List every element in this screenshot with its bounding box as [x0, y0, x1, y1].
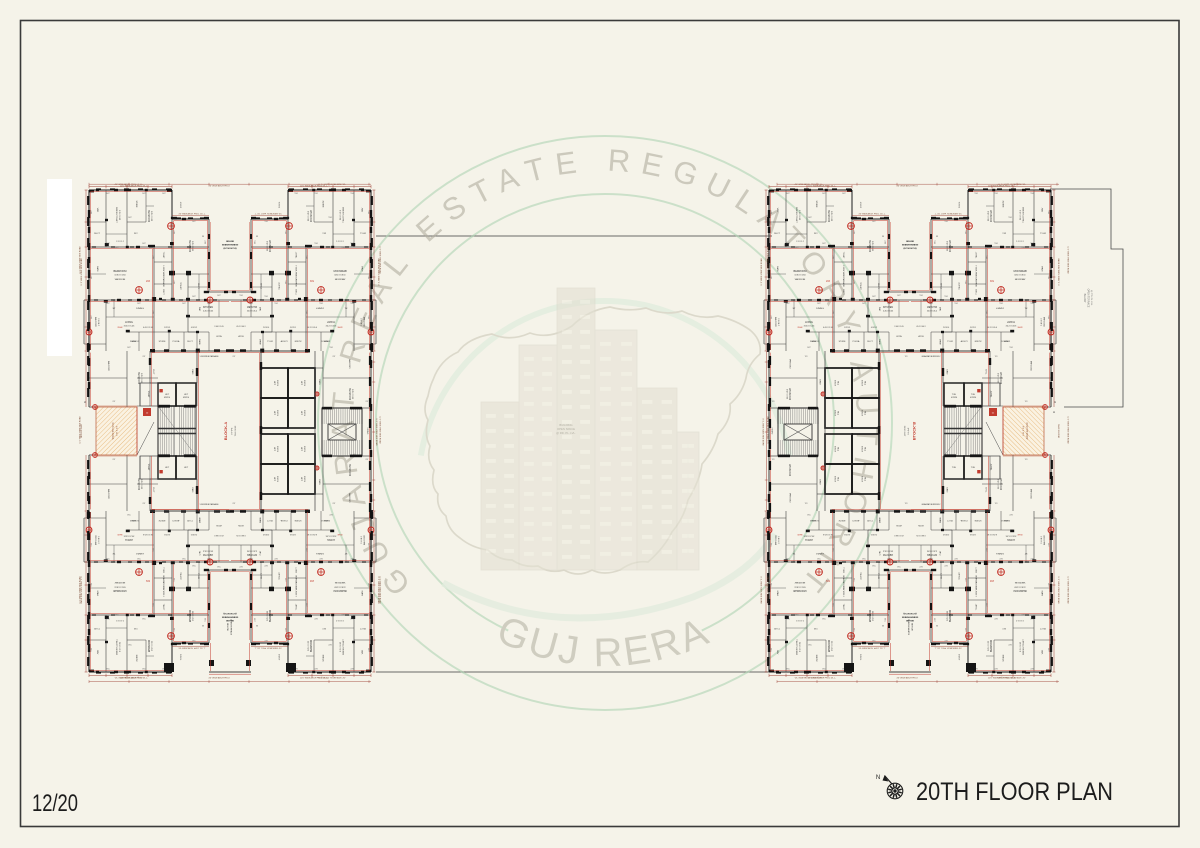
svg-text:0.9X1.2: 0.9X1.2: [263, 327, 269, 329]
svg-text:1.5 X 4.2: 1.5 X 4.2: [97, 318, 99, 326]
svg-text:VER: VER: [1042, 649, 1044, 654]
svg-text:2.1 X 1.2: 2.1 X 1.2: [116, 619, 124, 621]
svg-text:STORE: STORE: [135, 201, 137, 209]
svg-text:11'0" WIDE VIEW SIDE ROAD: 11'0" WIDE VIEW SIDE ROAD: [767, 416, 770, 444]
svg-text:DRESS TOILET: DRESS TOILET: [343, 207, 345, 223]
svg-text:10'6": 10'6": [833, 255, 835, 259]
svg-text:PASS: PASS: [946, 370, 949, 375]
svg-text:4.05 X 1.50: 4.05 X 1.50: [307, 533, 317, 535]
svg-text:BELOW: BELOW: [1083, 294, 1086, 303]
svg-text:10'6": 10'6": [328, 643, 332, 645]
svg-text:W: W: [256, 236, 258, 238]
svg-text:10'6": 10'6": [142, 667, 146, 669]
svg-text:10'6": 10'6": [128, 217, 132, 219]
svg-text:10'6": 10'6": [162, 193, 166, 195]
svg-text:4'6" WIDE ARCH. PROJ. @ L.L.: 4'6" WIDE ARCH. PROJ. @ L.L.: [858, 647, 886, 650]
svg-text:DUCT: DUCT: [94, 233, 101, 235]
svg-text:BALCONY: BALCONY: [1043, 534, 1046, 545]
svg-text:2.1 X 1.2: 2.1 X 1.2: [116, 241, 124, 243]
svg-text:10'6": 10'6": [854, 230, 856, 234]
svg-text:10'6": 10'6": [264, 639, 268, 641]
svg-text:10'6": 10'6": [239, 295, 243, 297]
svg-text:1.5M WIDE PASSAGE: 1.5M WIDE PASSAGE: [921, 355, 941, 358]
svg-text:POOJA: POOJA: [960, 340, 967, 343]
svg-text:10'6": 10'6": [933, 240, 935, 244]
svg-text:KOTA: KOTA: [238, 335, 244, 338]
svg-text:4.5X6.0: 4.5X6.0: [179, 654, 181, 660]
svg-text:2BHK: 2BHK: [337, 533, 343, 535]
svg-text:10'6": 10'6": [807, 513, 811, 515]
svg-text:10'6": 10'6": [994, 667, 998, 669]
svg-text:10'6": 10'6": [153, 255, 155, 259]
svg-text:2BHK: 2BHK: [797, 327, 803, 329]
svg-text:WARDROBE: WARDROBE: [115, 581, 126, 584]
svg-text:10'6": 10'6": [854, 280, 856, 284]
svg-text:2.45 X 3.05: 2.45 X 3.05: [926, 550, 937, 552]
svg-text:2BHK: 2BHK: [1017, 533, 1023, 535]
svg-text:VER: VER: [776, 649, 778, 654]
svg-text:10'6": 10'6": [944, 639, 948, 641]
svg-text:3.05 X 4.20: 3.05 X 4.20: [191, 241, 193, 252]
svg-text:10'6": 10'6": [274, 557, 278, 559]
svg-text:3.05 X 3.20: 3.05 X 3.20: [140, 373, 142, 384]
svg-text:11'0" WIDE VIEW SIDE ROAD: 11'0" WIDE VIEW SIDE ROAD: [79, 576, 82, 604]
svg-text:LIFT: LIFT: [970, 394, 975, 396]
svg-text:8'4": 8'4": [143, 356, 146, 358]
svg-text:W: W: [936, 236, 938, 238]
svg-text:10'6": 10'6": [284, 628, 286, 632]
svg-text:VER: VER: [1042, 208, 1044, 213]
svg-text:BALCONY: BALCONY: [363, 534, 366, 545]
svg-text:BEDROOM: BEDROOM: [348, 388, 350, 400]
svg-text:10'6": 10'6": [314, 193, 318, 195]
svg-text:10'6": 10'6": [1047, 543, 1049, 547]
svg-text:PASS: PASS: [819, 479, 822, 485]
svg-text:11'6" WIDE ARCH PROJ @L.L.: 11'6" WIDE ARCH PROJ @L.L.: [988, 184, 1016, 187]
svg-text:10'6": 10'6": [174, 628, 176, 632]
svg-text:2.44 X 1.05: 2.44 X 1.05: [214, 326, 223, 328]
svg-text:BEDROOM: BEDROOM: [348, 464, 350, 476]
svg-text:BEDROOM: BEDROOM: [114, 589, 127, 592]
svg-text:STORE: STORE: [974, 341, 982, 343]
svg-text:W: W: [882, 236, 884, 238]
svg-text:8'4": 8'4": [1024, 401, 1027, 403]
svg-text:1.2X1.5: 1.2X1.5: [164, 327, 170, 329]
svg-text:1.20 M WIDE PASSAGE: 1.20 M WIDE PASSAGE: [842, 574, 845, 597]
svg-text:BEDROOM: BEDROOM: [950, 240, 952, 252]
svg-text:DUCT: DUCT: [359, 233, 366, 235]
svg-text:TOILET: TOILET: [179, 572, 181, 580]
svg-text:11'0" WIDE VIEW SIDE ROAD: 11'0" WIDE VIEW SIDE ROAD: [1057, 258, 1060, 286]
svg-text:2BHK: 2BHK: [337, 327, 343, 329]
svg-text:3.05 X 3.20: 3.05 X 3.20: [998, 479, 1000, 490]
svg-text:POOJA: POOJA: [280, 340, 287, 343]
svg-text:10'6": 10'6": [205, 618, 207, 622]
svg-text:10'6": 10'6": [106, 617, 110, 619]
svg-text:LIVING: LIVING: [1007, 321, 1015, 324]
svg-text:4.05 X 1.50: 4.05 X 1.50: [823, 327, 833, 329]
svg-text:8'4X5'4: 8'4X5'4: [303, 410, 305, 416]
svg-text:TOILET: TOILET: [976, 252, 978, 259]
svg-text:HTYPE: HTYPE: [907, 427, 909, 434]
svg-text:1.20 M WIDE PASSAGE: 1.20 M WIDE PASSAGE: [162, 574, 165, 597]
svg-text:@ 7TH FL. LVL.: @ 7TH FL. LVL.: [1090, 290, 1092, 306]
svg-text:DUCT: DUCT: [266, 519, 272, 521]
svg-text:4'6" WIDE ARCH. PROJ. @ L.L.: 4'6" WIDE ARCH. PROJ. @ L.L.: [934, 212, 962, 215]
svg-text:2.15 X 2.45: 2.15 X 2.45: [1020, 641, 1022, 652]
svg-text:BEDROOM: BEDROOM: [868, 240, 870, 252]
svg-text:3.65 X 5.05: 3.65 X 5.05: [325, 535, 336, 537]
svg-text:0.9X1.2: 0.9X1.2: [263, 533, 269, 535]
svg-text:1.2X1.5: 1.2X1.5: [844, 327, 850, 329]
svg-text:10'6": 10'6": [153, 548, 155, 552]
svg-text:10'6": 10'6": [985, 548, 987, 552]
svg-text:10'6": 10'6": [294, 193, 298, 195]
svg-text:4.2 X 11.6: 4.2 X 11.6: [1023, 426, 1025, 437]
svg-text:BEDROOM: BEDROOM: [147, 210, 149, 222]
svg-text:OPEN TERRACE: OPEN TERRACE: [230, 619, 233, 636]
svg-text:KOTA: KOTA: [896, 524, 902, 527]
svg-text:10'6": 10'6": [305, 255, 307, 259]
svg-text:DINING: DINING: [136, 552, 144, 554]
svg-text:3.05 X 4.20: 3.05 X 4.20: [947, 610, 949, 621]
svg-text:2.44 X 1.05: 2.44 X 1.05: [214, 534, 223, 536]
svg-text:1.20 M WIDE PASSAGE: 1.20 M WIDE PASSAGE: [842, 265, 845, 288]
svg-text:10'6": 10'6": [807, 347, 811, 349]
svg-text:DUCT: DUCT: [774, 233, 781, 235]
svg-text:8'4": 8'4": [904, 503, 907, 505]
svg-text:BEDROOM: BEDROOM: [991, 210, 993, 222]
svg-text:BEDROOM: BEDROOM: [827, 210, 829, 222]
svg-text:2BHK: 2BHK: [797, 533, 803, 535]
svg-text:PASS: PASS: [191, 488, 194, 493]
svg-text:10'6": 10'6": [91, 275, 93, 279]
svg-text:3.05 X 3.20: 3.05 X 3.20: [140, 479, 142, 490]
svg-text:BALCONY: BALCONY: [94, 534, 97, 545]
svg-text:W.T.: W.T.: [1002, 233, 1006, 235]
svg-text:10'6": 10'6": [994, 617, 998, 619]
svg-text:10'6": 10'6": [1047, 648, 1049, 652]
svg-text:2.1 X 1.2: 2.1 X 1.2: [1016, 241, 1024, 243]
svg-text:8'4": 8'4": [366, 401, 369, 403]
svg-text:1.5 X 4.2: 1.5 X 4.2: [1041, 318, 1043, 326]
svg-text:N: N: [876, 775, 880, 781]
svg-text:3.05 X 4.20: 3.05 X 4.20: [871, 610, 873, 621]
svg-text:2.15 X 2.45: 2.15 X 2.45: [118, 641, 120, 652]
svg-text:1.5 X 4.2: 1.5 X 4.2: [777, 536, 779, 544]
svg-text:2.0X1.5: 2.0X1.5: [321, 519, 327, 521]
svg-text:WARDROBE: WARDROBE: [334, 278, 345, 281]
svg-text:DRESS TOILET: DRESS TOILET: [115, 207, 117, 223]
svg-text:10'6": 10'6": [862, 303, 866, 305]
svg-text:DUCT: DUCT: [197, 572, 199, 578]
svg-text:10'6": 10'6": [985, 310, 987, 314]
svg-text:BEDROOM: BEDROOM: [270, 610, 272, 622]
svg-text:BEDROOM: BEDROOM: [991, 640, 993, 652]
svg-text:11'0" WIDE VIEW SIDE ROAD: 11'0" WIDE VIEW SIDE ROAD: [379, 416, 382, 444]
svg-text:BATH: BATH: [1041, 266, 1044, 272]
svg-text:STORE: STORE: [815, 654, 817, 662]
svg-text:10'6": 10'6": [833, 548, 835, 552]
svg-text:LIFT: LIFT: [184, 467, 189, 469]
svg-text:TOILET: TOILET: [296, 603, 298, 610]
svg-text:BELOW: BELOW: [226, 241, 234, 243]
svg-text:10'6": 10'6": [842, 193, 846, 195]
svg-text:10'6": 10'6": [174, 230, 176, 234]
svg-text:DUCT: DUCT: [1039, 233, 1046, 235]
svg-text:4.2 X 11.6: 4.2 X 11.6: [115, 426, 117, 437]
svg-text:OPEN TERRACE: OPEN TERRACE: [908, 619, 911, 636]
svg-text:3.05 X 4.20: 3.05 X 4.20: [871, 241, 873, 252]
svg-text:203: 203: [309, 579, 314, 582]
svg-text:DINING: DINING: [316, 308, 324, 310]
svg-text:10'6": 10'6": [106, 193, 110, 195]
svg-text:8'4": 8'4": [113, 459, 116, 461]
svg-text:10'6": 10'6": [944, 564, 948, 566]
svg-text:3.05 X 4.20: 3.05 X 4.20: [267, 610, 269, 621]
svg-text:PASS: PASS: [318, 379, 321, 385]
svg-text:2.0X1.5: 2.0X1.5: [1001, 341, 1007, 343]
svg-text:8'4X5'4: 8'4X5'4: [276, 476, 278, 482]
svg-text:2.1 X 1.2: 2.1 X 1.2: [336, 241, 344, 243]
svg-text:10'6": 10'6": [217, 565, 221, 567]
svg-text:2.1 X 1.2: 2.1 X 1.2: [796, 619, 804, 621]
svg-text:4.05 X 1.50: 4.05 X 1.50: [987, 327, 997, 329]
svg-text:4'6" WIDE ARCH PROJ: 4'6" WIDE ARCH PROJ: [208, 184, 229, 187]
svg-text:1.20 M WIDE PASSAGE: 1.20 M WIDE PASSAGE: [295, 265, 298, 288]
svg-text:8'4X5'4: 8'4X5'4: [276, 410, 278, 416]
svg-text:DUCT: DUCT: [162, 289, 164, 295]
svg-text:4.5X6.0: 4.5X6.0: [179, 202, 181, 208]
svg-text:2.0X1.5: 2.0X1.5: [133, 519, 139, 521]
svg-text:BALCONY: BALCONY: [94, 317, 97, 328]
svg-text:10'6": 10'6": [964, 578, 966, 582]
svg-text:10'6": 10'6": [786, 193, 790, 195]
svg-text:KITCHEN: KITCHEN: [203, 553, 213, 555]
svg-text:10'6": 10'6": [314, 667, 318, 669]
svg-text:10'6": 10'6": [174, 280, 176, 284]
svg-text:10'6": 10'6": [808, 217, 812, 219]
svg-text:2BHK: 2BHK: [117, 533, 123, 535]
svg-text:8'4": 8'4": [994, 356, 997, 358]
svg-text:2.44 X 1.05: 2.44 X 1.05: [894, 326, 903, 328]
svg-text:DRESS TOILET: DRESS TOILET: [795, 638, 797, 654]
svg-text:DUCT: DUCT: [941, 283, 943, 289]
svg-text:DUCT: DUCT: [162, 567, 164, 573]
svg-text:10'6": 10'6": [305, 310, 307, 314]
svg-text:KITCHEN: KITCHEN: [883, 307, 893, 309]
svg-text:11'0" WIDE VIEW SIDE ROAD: 11'0" WIDE VIEW SIDE ROAD: [379, 576, 382, 604]
svg-text:BALCONY: BALCONY: [774, 534, 777, 545]
svg-text:10'6": 10'6": [137, 303, 141, 305]
svg-text:10'6": 10'6": [786, 303, 790, 305]
svg-text:BEDROOM: BEDROOM: [790, 388, 792, 400]
svg-text:DRESS TOILET: DRESS TOILET: [115, 638, 117, 654]
svg-text:10'6": 10'6": [817, 303, 821, 305]
svg-text:8'4X5'4: 8'4X5'4: [303, 476, 305, 482]
svg-text:3.35 X 3.50: 3.35 X 3.50: [334, 275, 346, 277]
svg-text:1.20 M WIDE PASSAGE: 1.20 M WIDE PASSAGE: [975, 265, 978, 288]
svg-text:4'6" WIDE ARCH PROJ: 4'6" WIDE ARCH PROJ: [896, 184, 917, 187]
svg-text:10'6": 10'6": [367, 315, 369, 319]
svg-text:3.65 X 5.05: 3.65 X 5.05: [804, 535, 815, 537]
svg-text:10'6": 10'6": [1030, 193, 1034, 195]
svg-text:10'6": 10'6": [954, 303, 958, 305]
svg-text:10'6": 10'6": [192, 564, 196, 566]
svg-text:4.5X6.0: 4.5X6.0: [279, 202, 281, 208]
svg-text:DRESS TOILET: DRESS TOILET: [1023, 638, 1025, 654]
svg-text:10'6": 10'6": [872, 639, 876, 641]
svg-text:10'6": 10'6": [253, 618, 255, 622]
svg-text:11'6" WIDE ARCH PROJ @L.L.: 11'6" WIDE ARCH PROJ @L.L.: [300, 677, 328, 680]
svg-text:1.2X1.5: 1.2X1.5: [164, 533, 170, 535]
svg-text:STORE: STORE: [159, 519, 167, 521]
svg-text:DINING: DINING: [816, 308, 824, 310]
svg-text:10'6": 10'6": [91, 583, 93, 587]
svg-text:8'4X5'4: 8'4X5'4: [862, 410, 864, 416]
svg-text:8'4": 8'4": [804, 503, 807, 505]
svg-text:10'6": 10'6": [106, 243, 110, 245]
svg-text:VER: VER: [96, 208, 98, 213]
svg-text:10'6": 10'6": [137, 557, 141, 559]
svg-text:BATH: BATH: [96, 266, 99, 272]
svg-text:3.05 X 3.35: 3.05 X 3.35: [830, 211, 832, 222]
svg-text:STORE: STORE: [1003, 654, 1005, 662]
svg-text:10'6": 10'6": [854, 628, 856, 632]
svg-text:10'6": 10'6": [786, 557, 790, 559]
svg-text:10'6": 10'6": [207, 557, 211, 559]
svg-text:203: 203: [989, 579, 994, 582]
svg-text:OPEN TERRACE: OPEN TERRACE: [221, 244, 238, 247]
svg-text:10'6": 10'6": [182, 557, 186, 559]
svg-text:LIVING: LIVING: [772, 428, 774, 435]
svg-text:BEDROOM: BEDROOM: [311, 210, 313, 222]
svg-text:203: 203: [146, 280, 151, 283]
svg-text:10'6": 10'6": [192, 296, 196, 298]
svg-text:LIVING: LIVING: [125, 321, 133, 324]
svg-text:3.65 X 5.05: 3.65 X 5.05: [804, 325, 815, 327]
svg-text:8'4X5'4: 8'4X5'4: [303, 380, 305, 386]
svg-text:WASH: WASH: [878, 516, 881, 522]
svg-text:2.45 X 3.05: 2.45 X 3.05: [883, 550, 894, 552]
svg-text:KOTA: KOTA: [918, 524, 924, 527]
svg-text:KITCHEN: KITCHEN: [247, 307, 257, 309]
svg-text:BEDROOM: BEDROOM: [311, 640, 313, 652]
svg-text:KOTA: KOTA: [238, 524, 244, 527]
svg-text:203: 203: [989, 280, 994, 283]
svg-text:11'0" WIDE VIEW SIDE ROAD: 11'0" WIDE VIEW SIDE ROAD: [379, 246, 382, 274]
svg-text:10'6": 10'6": [771, 315, 773, 319]
svg-text:10'6": 10'6": [329, 347, 333, 349]
svg-text:6'8X5'4: 6'8X5'4: [951, 397, 957, 399]
svg-text:STORE: STORE: [159, 341, 167, 343]
svg-text:3.05 X 3.20: 3.05 X 3.20: [787, 389, 789, 400]
svg-text:3.05 X 4.20: 3.05 X 4.20: [267, 241, 269, 252]
svg-text:1.5 X 4.2: 1.5 X 4.2: [361, 536, 363, 544]
svg-text:10'6": 10'6": [328, 217, 332, 219]
svg-text:8'4X5'4: 8'4X5'4: [276, 446, 278, 452]
svg-text:LIFT: LIFT: [165, 394, 170, 396]
svg-text:VER: VER: [362, 208, 364, 213]
svg-text:10'6": 10'6": [929, 557, 933, 559]
svg-text:1.2X1.5: 1.2X1.5: [290, 533, 296, 535]
svg-text:10'6": 10'6": [127, 347, 131, 349]
svg-text:10'6": 10'6": [897, 565, 901, 567]
svg-text:10'6": 10'6": [305, 548, 307, 552]
svg-text:POOJA: POOJA: [173, 519, 180, 522]
svg-text:3.05 X 4.20: 3.05 X 4.20: [191, 610, 193, 621]
svg-text:T.B.H 98.48: T.B.H 98.48: [903, 425, 905, 436]
svg-text:10'6": 10'6": [217, 295, 221, 297]
svg-text:TOILET: TOILET: [179, 282, 181, 290]
svg-text:203: 203: [309, 280, 314, 283]
svg-text:T.B.H 98.48: T.B.H 98.48: [235, 425, 237, 436]
svg-text:REFUGE FLAT: REFUGE FLAT: [1057, 423, 1060, 437]
svg-text:3.65 X 5.05: 3.65 X 5.05: [325, 325, 336, 327]
svg-text:BEDROOM: BEDROOM: [188, 610, 190, 622]
svg-text:0.9X1.2: 0.9X1.2: [943, 533, 949, 535]
svg-text:BLOCK-A: BLOCK-A: [223, 422, 228, 441]
svg-text:10'6": 10'6": [887, 303, 891, 305]
svg-text:BEDROOM: BEDROOM: [827, 640, 829, 652]
svg-text:11'6" WIDE ARCH PROJ @L.L.: 11'6" WIDE ARCH PROJ @L.L.: [808, 677, 836, 680]
svg-text:10'6": 10'6": [341, 247, 345, 249]
svg-text:12/20: 12/20: [32, 790, 78, 817]
svg-text:4'6" WIDE ARCH. PROJ. @ L.L.: 4'6" WIDE ARCH. PROJ. @ L.L.: [934, 647, 962, 650]
svg-text:10'6": 10'6": [872, 564, 876, 566]
svg-text:8'4X5'4: 8'4X5'4: [835, 380, 837, 386]
svg-text:BALCONY: BALCONY: [363, 317, 366, 328]
svg-text:PASS: PASS: [191, 370, 194, 375]
svg-text:LIVING: LIVING: [1007, 538, 1015, 541]
svg-text:1.2X1.5: 1.2X1.5: [290, 327, 296, 329]
svg-text:10'6": 10'6": [786, 667, 790, 669]
svg-text:10'6": 10'6": [115, 613, 119, 615]
svg-text:POOJA: POOJA: [280, 519, 287, 522]
svg-text:10'6": 10'6": [128, 643, 132, 645]
svg-text:2.0X1.5: 2.0X1.5: [813, 341, 819, 343]
svg-text:DUCT: DUCT: [296, 567, 298, 573]
svg-text:BEDROOM: BEDROOM: [790, 464, 792, 476]
svg-text:PASS: PASS: [819, 379, 822, 385]
svg-text:10'6": 10'6": [1030, 557, 1034, 559]
svg-text:KOTA: KOTA: [918, 335, 924, 338]
svg-text:10'6": 10'6": [106, 303, 110, 305]
svg-text:LIVING: LIVING: [805, 538, 813, 541]
svg-text:8'4X5'4: 8'4X5'4: [862, 380, 864, 386]
svg-text:BATH: BATH: [96, 590, 99, 596]
svg-text:W.T.: W.T.: [134, 233, 138, 235]
svg-text:DRESS TOILET: DRESS TOILET: [795, 207, 797, 223]
svg-text:W.T.: W.T.: [814, 627, 818, 629]
svg-text:10'6": 10'6": [999, 303, 1003, 305]
svg-text:0.9X1.2: 0.9X1.2: [191, 533, 197, 535]
svg-text:4'6" WIDE ARCH. PROJ. @ L.L.: 4'6" WIDE ARCH. PROJ. @ L.L.: [254, 212, 282, 215]
svg-text:10'6": 10'6": [106, 557, 110, 559]
svg-text:2.44 X 1.05: 2.44 X 1.05: [236, 326, 245, 328]
svg-text:1.5 X 4.2: 1.5 X 4.2: [1041, 536, 1043, 544]
svg-text:DINING: DINING: [316, 552, 324, 554]
svg-text:4.05 X 1.50: 4.05 X 1.50: [823, 533, 833, 535]
svg-text:WARDROBE: WARDROBE: [1014, 581, 1025, 584]
svg-text:4'6" WIDE ARCH PROJ: 4'6" WIDE ARCH PROJ: [896, 677, 917, 680]
svg-text:STORE: STORE: [1003, 201, 1005, 209]
svg-text:11'0" WIDE VIEW SIDE ROAD: 11'0" WIDE VIEW SIDE ROAD: [1067, 416, 1070, 444]
svg-text:10'6": 10'6": [350, 557, 354, 559]
svg-text:10'6": 10'6": [786, 617, 790, 619]
svg-text:10'6": 10'6": [314, 617, 318, 619]
svg-text:10'6": 10'6": [885, 240, 887, 244]
